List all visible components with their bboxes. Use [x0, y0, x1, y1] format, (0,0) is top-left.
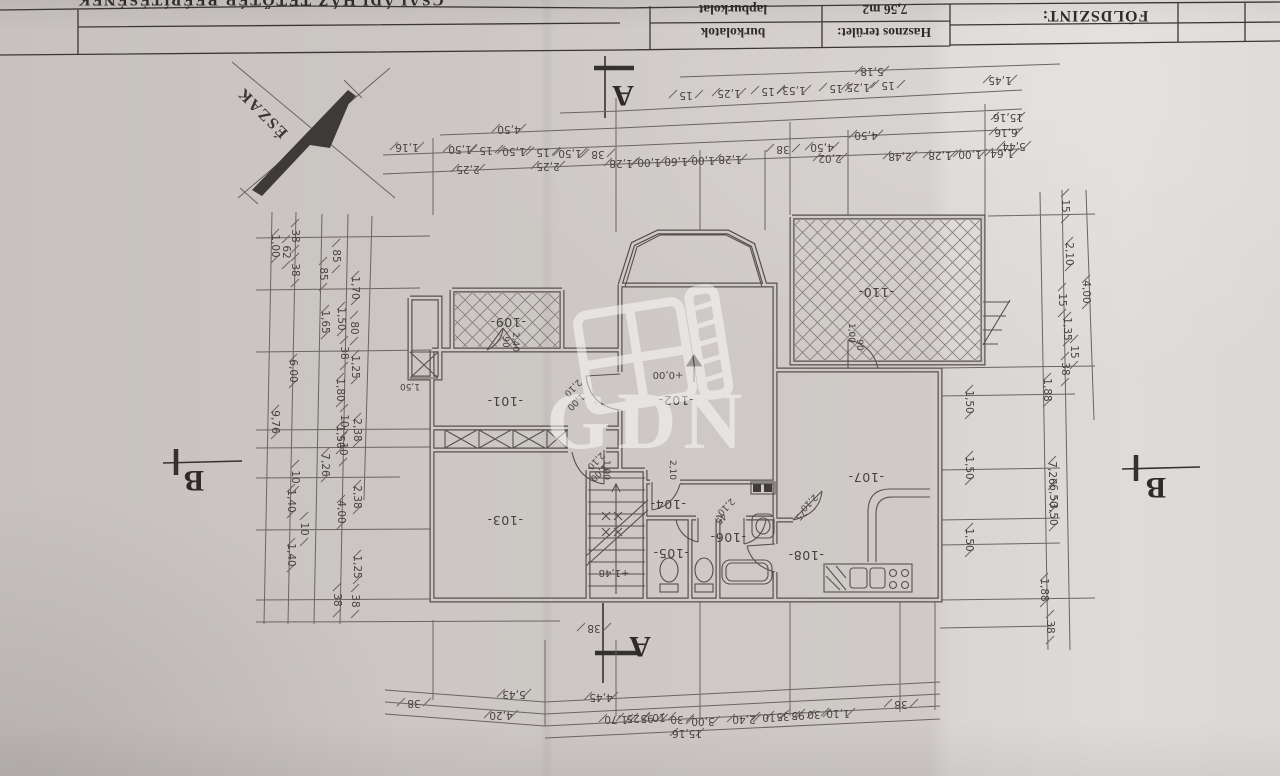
- dimension-text: 4,00: [335, 500, 347, 523]
- dimension-text: 1,70: [349, 276, 361, 299]
- section-marker-b-right: B: [1134, 470, 1178, 504]
- dimension-text: 4,00: [1080, 280, 1092, 303]
- dimension-text: 90: [500, 336, 510, 348]
- dimension-text: 15,16: [993, 111, 1023, 123]
- dimension-text: 1,88: [1038, 578, 1050, 601]
- dimension-text: 4,50: [497, 123, 520, 135]
- dimension-text: 2,25: [456, 163, 479, 175]
- scanned-floor-plan-photo: 4,501,161,50151,50151,50382,252,251,281,…: [0, 0, 1280, 776]
- dimension-text: 15: [829, 82, 842, 94]
- dimension-text: 9,76: [269, 410, 281, 434]
- dimension-text: 1,80: [334, 378, 346, 401]
- dimension-text: 1,00: [958, 148, 981, 160]
- dimension-text: 15: [1059, 199, 1071, 212]
- dimension-text: 15: [1056, 293, 1068, 306]
- dimension-text: 62: [280, 245, 292, 258]
- dimension-text: 38: [338, 346, 350, 359]
- dimension-text: 1,10: [826, 707, 849, 719]
- dimension-text: 15: [881, 79, 894, 91]
- dimension-text: 15: [1068, 345, 1080, 358]
- dimension-text: 1,50: [963, 528, 975, 551]
- dimension-text: 1,70: [604, 713, 627, 725]
- dimension-text: 30: [670, 713, 683, 725]
- dimension-text: 1,40: [285, 543, 297, 566]
- dimension-text: 1,50: [963, 390, 975, 413]
- dimension-text: 4,45: [589, 691, 612, 703]
- room-label: -108-: [788, 548, 824, 563]
- dimension-text: 1,25: [351, 555, 363, 578]
- dimension-text: 5,43: [502, 688, 525, 700]
- room-label: -104-: [650, 497, 686, 512]
- dimension-text: 38: [1059, 362, 1071, 375]
- dimension-text: 2,48: [888, 150, 911, 162]
- dimension-text: 1,50: [502, 145, 525, 157]
- dimension-text: 3,50: [1047, 502, 1059, 525]
- dimension-text: 1,25: [846, 81, 869, 93]
- dimension-text: 1,00: [637, 156, 660, 168]
- dimension-text: 15: [679, 89, 692, 101]
- section-marker-a-top: A: [601, 78, 645, 112]
- room-label: -105-: [653, 546, 689, 561]
- dimension-text: 1,50: [335, 307, 347, 330]
- dimension-text: 15: [536, 146, 549, 158]
- kitchen-fixtures: [824, 489, 930, 592]
- dimension-text: 85: [317, 267, 329, 280]
- dimension-text: 25: [626, 712, 639, 724]
- dimension-text: 1,88: [1041, 378, 1053, 401]
- dimension-text: 6,00: [287, 359, 299, 382]
- dimension-text: 38: [331, 593, 343, 606]
- dimension-text: 38: [407, 697, 420, 709]
- dimension-text: 1,25: [717, 87, 740, 99]
- dimension-text: 85: [330, 249, 342, 262]
- section-marker-a-bottom: A: [618, 629, 662, 663]
- dimension-text: 6,16: [994, 126, 1018, 138]
- gdn-watermark: GDN: [546, 288, 749, 466]
- area-value: 7,56 m2: [824, 1, 946, 17]
- dimension-text: 90: [854, 339, 864, 351]
- dimension-text: 10: [337, 442, 349, 455]
- dimension-text: 10: [298, 522, 310, 535]
- room-label: -107-: [848, 470, 884, 485]
- dimension-text: 1,28: [928, 149, 951, 161]
- dimension-text: 38: [349, 594, 361, 607]
- dimension-text: 95: [791, 709, 804, 721]
- dimension-text: 1,28: [609, 157, 632, 169]
- dimension-text: 15: [479, 144, 492, 156]
- dimension-text: 4,50: [854, 129, 877, 141]
- dimension-text: 38: [289, 263, 301, 276]
- dimension-text: 10: [652, 711, 665, 723]
- dimension-text: 1,50: [400, 381, 420, 391]
- dimension-text: 7,26: [319, 453, 331, 477]
- room-label: -103-: [487, 513, 523, 528]
- dimension-text: 38: [591, 148, 604, 160]
- flooring-value: lapburkolat: [652, 1, 814, 17]
- room-label: -106-: [710, 530, 746, 545]
- dimension-text: 1,45: [988, 74, 1011, 86]
- dimension-text: 35: [776, 710, 789, 722]
- compass-fin: [303, 96, 352, 148]
- col2-header: burkolatok: [652, 24, 814, 40]
- dimension-text: 1,35: [1061, 317, 1073, 340]
- dimension-text: 10: [289, 470, 301, 483]
- dimension-text: 2,25: [536, 160, 559, 172]
- col1-header: Hasznos terület:: [820, 24, 948, 40]
- dimension-text: 1,28: [718, 153, 741, 165]
- watermark-text: GDN: [546, 375, 749, 466]
- dimension-text: 1,50: [558, 147, 581, 159]
- dimension-text: 4,50: [810, 141, 833, 153]
- project-title: CSALÁDI HÁZ TETŐTÉR BEÉPÍTÉSÉNEK: [70, 0, 450, 8]
- dimension-text: 38: [289, 229, 301, 242]
- dimension-text: 1,53: [782, 84, 805, 96]
- dimension-text: 80: [348, 321, 360, 334]
- section-marker-b-left: B: [172, 463, 216, 497]
- dimension-text: 5,44: [1002, 140, 1026, 152]
- dimension-text: 1,65: [319, 310, 331, 333]
- dimension-text: 5,18: [860, 65, 883, 77]
- dimension-text: 2,40: [510, 332, 520, 352]
- dimension-text: 10: [762, 711, 775, 723]
- dimension-text: 1,25: [349, 355, 361, 378]
- dimension-text: 1,60: [664, 155, 687, 167]
- room-label: -101-: [487, 394, 523, 409]
- dimension-text: 7,26: [1046, 461, 1058, 485]
- dimension-text: 15,16: [672, 727, 702, 739]
- dimension-text: 1,00: [691, 154, 714, 166]
- dimension-text: 2,38: [351, 418, 363, 441]
- room-label: -109-: [490, 315, 526, 330]
- dimension-text: 2,10: [1063, 242, 1075, 265]
- dimension-text: 38: [776, 143, 789, 155]
- dimension-text: 1,50: [963, 456, 975, 479]
- dimension-text: 1,16: [395, 141, 419, 153]
- room-label: -110-: [858, 285, 894, 300]
- dimension-text: 2,40: [732, 713, 755, 725]
- dimension-text: 1,50: [448, 143, 471, 155]
- dimension-text: 2,38: [351, 485, 363, 508]
- dimension-text: 95: [640, 712, 653, 724]
- dimension-text: 30: [807, 708, 820, 720]
- dimension-text: 38: [587, 622, 600, 634]
- dimension-text: 1,40: [285, 489, 297, 512]
- north-compass: [232, 62, 395, 204]
- dimension-text: 3,00: [691, 715, 714, 727]
- dimension-text: 38: [1044, 620, 1056, 633]
- dimension-text: 1,00: [269, 234, 281, 257]
- dimension-text: +1,48: [599, 567, 630, 578]
- dimension-text: 15: [761, 85, 774, 97]
- sheet-label: FÖLDSZINT:: [995, 6, 1195, 24]
- dimension-text: 4,20: [489, 709, 512, 721]
- dimension-text: 38: [894, 698, 907, 710]
